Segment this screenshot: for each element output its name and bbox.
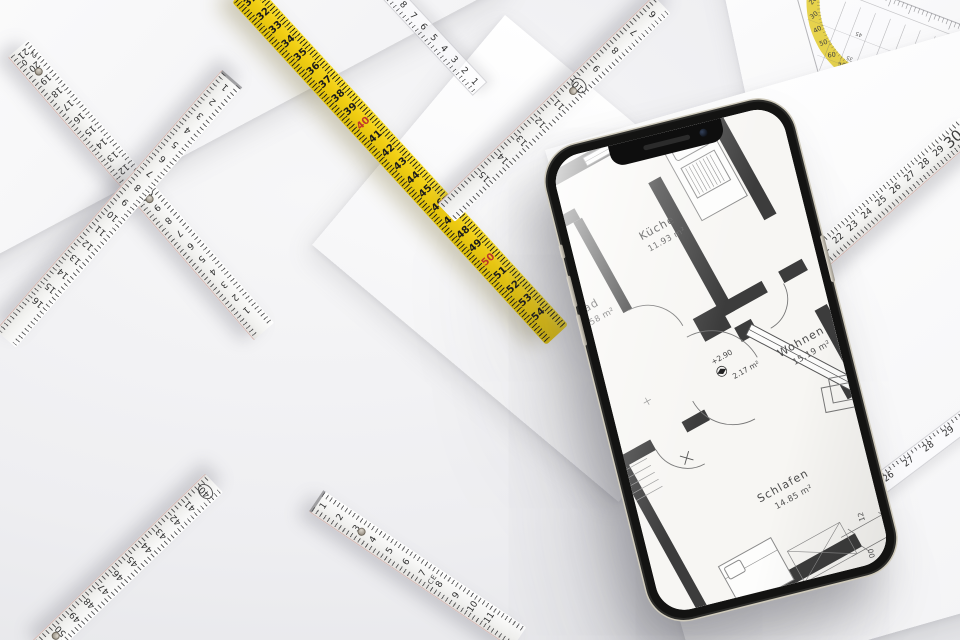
ruler-number: 26: [882, 470, 897, 484]
ruler-number: 44: [405, 170, 422, 187]
ruler-number: 24: [860, 207, 875, 221]
ruler-number: 3: [196, 110, 206, 121]
ruler-number: 1: [221, 81, 231, 92]
ruler-number: 23: [846, 220, 861, 234]
ruler-number: 9: [121, 196, 131, 207]
ruler-number: 8: [397, 0, 407, 10]
ruler-number: 2: [336, 512, 347, 522]
ruler-number: 5: [386, 546, 397, 556]
ruler-number: 6: [648, 8, 658, 18]
ruler-bottom-left: 4041424344454647484950: [29, 473, 223, 640]
ruler-number: 49: [69, 609, 83, 623]
ruler-number: 14: [497, 150, 511, 164]
ruler-number: 5: [171, 138, 181, 149]
ruler-number: 3: [448, 55, 458, 65]
ruler-number: 9: [592, 62, 602, 72]
ruler-number: 54: [530, 306, 547, 323]
ruler-number: 34: [280, 33, 297, 50]
ruler-number: 26: [889, 182, 904, 196]
ruler-number: 27: [902, 455, 917, 469]
ruler-number: 3: [218, 278, 228, 289]
ruler-number: 4: [369, 534, 380, 544]
ruler-number: 4: [438, 44, 448, 54]
ruler-number: 39: [343, 102, 360, 119]
ruler-number: 45: [418, 183, 435, 200]
ruler-number: 11: [94, 223, 109, 237]
ruler-number: 46: [112, 567, 126, 581]
ruler-number: 15: [478, 169, 492, 183]
ruler-number: 47: [98, 581, 112, 595]
ruler-number: 7: [146, 167, 156, 178]
ruler-number: 12: [81, 237, 96, 251]
ruler-number: 10: [467, 599, 481, 614]
ruler-number: 8: [133, 181, 143, 192]
ruler-number: 7: [419, 568, 430, 578]
ruler-number: 28: [922, 440, 937, 454]
ruler-number: 1: [319, 501, 330, 511]
ruler-number: 7: [173, 227, 183, 238]
ruler-number: 53: [518, 293, 535, 310]
ruler-number: 43: [393, 156, 410, 173]
ruler-number: 41: [368, 129, 385, 146]
ruler-number: 2: [458, 66, 468, 76]
ruler-number: 14: [93, 135, 108, 149]
ruler-number: 37: [318, 74, 335, 91]
ruler-number: 15: [44, 280, 59, 294]
ruler-number: 8: [162, 214, 172, 225]
ruler-number: 25: [875, 195, 890, 209]
ruler-number: 44: [141, 540, 155, 554]
photo-flatlay-scene: 1020304050607080901001101201301401501601…: [0, 0, 960, 640]
ruler-number: 31: [243, 0, 260, 9]
ruler-number: 5: [428, 33, 438, 43]
ruler-number: 1: [240, 304, 250, 315]
ruler-number: 18: [48, 84, 63, 98]
ruler-number: 38: [330, 88, 347, 105]
ruler-number: 42: [170, 512, 184, 526]
ruler-number: 48: [83, 595, 97, 609]
ruler-number: 11: [553, 96, 567, 110]
ruler-number: 5: [196, 253, 206, 264]
ruler-number: 2: [229, 291, 239, 302]
ruler-number: 9: [452, 590, 463, 600]
front-camera-icon: [699, 128, 709, 138]
ruler-number: 7: [630, 26, 640, 36]
ruler-number: 10: [106, 208, 121, 222]
ruler-number: 13: [69, 251, 84, 265]
ruler-number: 40: [355, 115, 372, 132]
ruler-bottom-center: 1234567891011CE: [309, 490, 527, 640]
ruler-number: 52: [505, 279, 522, 296]
ruler-number: 11: [483, 610, 497, 625]
ruler-number: 51: [493, 265, 510, 282]
ruler-number: 13: [104, 148, 119, 162]
ruler-number: 50: [480, 252, 497, 269]
ruler-number: 40: [195, 480, 216, 502]
ruler-number: 27: [903, 170, 918, 184]
ruler-number: 28: [918, 157, 933, 171]
ruler-number: 8: [435, 579, 446, 589]
ruler-number: 4: [207, 266, 217, 277]
ruler-number: 43: [155, 526, 169, 540]
ruler-number: 30: [941, 128, 960, 152]
ruler-number: 35: [293, 47, 310, 64]
ruler-number: 12: [115, 161, 130, 175]
ruler-number: 17: [60, 97, 75, 111]
ruler-number: 15: [82, 123, 97, 137]
speaker-icon: [643, 134, 691, 150]
ruler-number: 32: [255, 6, 272, 23]
ruler-number: 16: [71, 110, 86, 124]
ruler-number: 1: [469, 77, 479, 87]
ruler-number: 6: [158, 153, 168, 164]
ruler-number: 4: [183, 124, 193, 135]
ruler-number: 49: [468, 238, 485, 255]
degree-label: 60: [827, 50, 836, 59]
ruler-number: 2: [208, 95, 218, 106]
ruler-number: 22: [832, 232, 847, 246]
ruler-number: 6: [402, 557, 413, 567]
ruler-number: 7: [407, 11, 417, 21]
ruler-number: 12: [534, 114, 548, 128]
ruler-number: 13: [516, 132, 530, 146]
ruler-number: 8: [611, 44, 621, 54]
ruler-number: 42: [380, 142, 397, 159]
ruler-number: 48: [455, 224, 472, 241]
ruler-number: 45: [127, 553, 141, 567]
ruler-number: 16: [32, 294, 47, 308]
ruler-number: 6: [184, 240, 194, 251]
ruler-number: 29: [942, 425, 957, 439]
ruler-number: 6: [417, 22, 427, 32]
ruler-number: 9: [151, 201, 161, 212]
ruler-number: 41: [184, 498, 198, 512]
ruler-number: 29: [932, 145, 947, 159]
ruler-number: 33: [268, 20, 285, 37]
ruler-number: 14: [56, 266, 71, 280]
ruler-number: 36: [305, 61, 322, 78]
